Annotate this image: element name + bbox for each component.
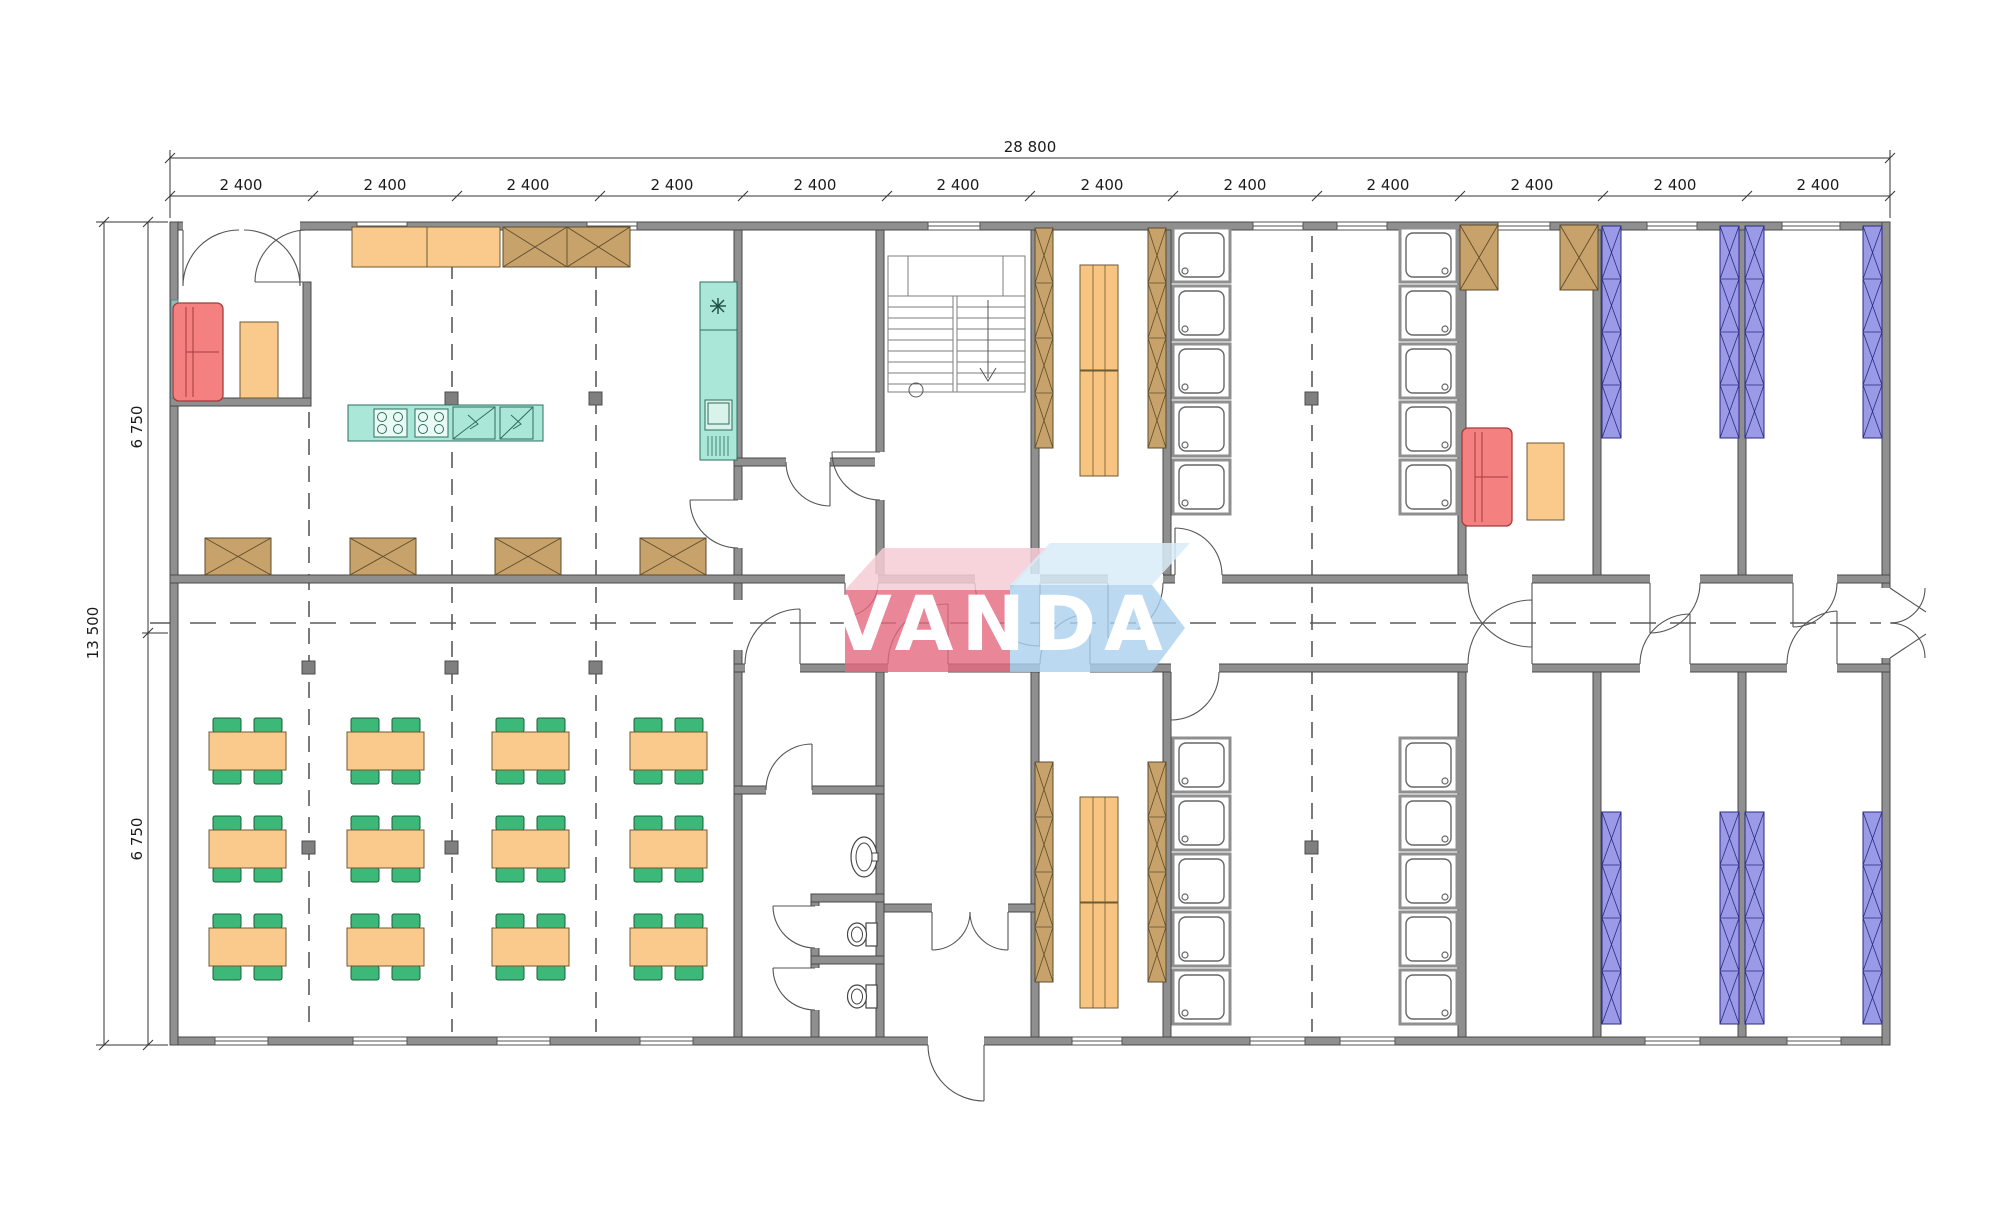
dining-table-set (209, 816, 286, 882)
oven (705, 400, 732, 430)
dim-segment: 2 400 (794, 176, 837, 194)
locker-column (1148, 762, 1166, 982)
door (1793, 583, 1837, 627)
wardrobe-locker (1560, 225, 1598, 290)
dim-segment: 2 400 (1224, 176, 1267, 194)
column (1305, 392, 1318, 405)
dim-segment: 2 400 (1511, 176, 1554, 194)
exterior-wall-bottom (170, 1037, 1890, 1045)
dim-total-height: 13 500 (84, 607, 102, 660)
column (445, 841, 458, 854)
interior-wall (811, 894, 884, 902)
bench (1080, 903, 1118, 1008)
dim-segment: 2 400 (651, 176, 694, 194)
table (240, 322, 278, 398)
bunk-rack (1602, 812, 1621, 1024)
column (589, 392, 602, 405)
tall-kitchen-unit (700, 282, 737, 460)
door (1468, 583, 1532, 647)
wardrobe-locker (1460, 225, 1498, 290)
shower-room-bottom (1173, 738, 1457, 1024)
dining-table-set (630, 718, 707, 784)
column (589, 661, 602, 674)
bench (1080, 797, 1118, 902)
serving-table (205, 538, 271, 575)
dim-total-width: 28 800 (1004, 138, 1057, 156)
fridge-icon (710, 298, 726, 314)
door (786, 462, 830, 506)
dining-table-set (209, 914, 286, 980)
bunk-rack (1602, 226, 1621, 438)
bunk-rack (1863, 812, 1882, 1024)
sofa (173, 303, 223, 401)
double-door-leaf (970, 912, 1008, 950)
dining-table-set (209, 718, 286, 784)
bench (1080, 265, 1118, 370)
door (1171, 672, 1219, 720)
dim-upper-half: 6 750 (128, 406, 146, 449)
door (745, 609, 800, 664)
interior-wall (1458, 664, 1466, 1037)
dim-segment: 2 400 (1797, 176, 1840, 194)
dining-table-set (492, 816, 569, 882)
entrance-door-leaf (183, 230, 239, 286)
dim-segment: 2 400 (220, 176, 263, 194)
column (445, 392, 458, 405)
dining-table-set (630, 816, 707, 882)
column (302, 841, 315, 854)
dining-table-set (347, 816, 424, 882)
locker-column (1035, 228, 1053, 448)
dim-segment: 2 400 (507, 176, 550, 194)
dim-segment: 2 400 (1654, 176, 1697, 194)
interior-wall (876, 230, 884, 583)
floor-plan-page: 28 800 2 400 2 400 2 400 2 400 2 400 2 4… (0, 0, 2000, 1216)
table (1527, 443, 1564, 520)
toilet (848, 985, 878, 1008)
interior-wall (303, 282, 311, 403)
kitchen-counter (352, 227, 500, 267)
dining-table-set (630, 914, 707, 980)
dining-table-set (347, 914, 424, 980)
floor-plan-drawing: 28 800 2 400 2 400 2 400 2 400 2 400 2 4… (0, 0, 2000, 1216)
dining-table-set (347, 718, 424, 784)
storage-crates (503, 227, 630, 267)
bunk-rack (1863, 226, 1882, 438)
double-door-leaf (932, 912, 970, 950)
wc-block (848, 837, 879, 1008)
interior-wall (876, 664, 884, 1037)
shower-room-top (1173, 228, 1457, 514)
door (766, 744, 812, 790)
changing-room-bottom (1035, 762, 1166, 1008)
serving-table (495, 538, 561, 575)
bunk-rack (1745, 226, 1764, 438)
staircase (888, 256, 1025, 397)
kitchen-island (348, 405, 543, 441)
lobby-room (171, 300, 278, 401)
toilet (848, 923, 878, 946)
exterior-door (928, 1045, 984, 1101)
locker-column (1035, 762, 1053, 982)
dim-segment: 2 400 (1367, 176, 1410, 194)
bench (1080, 371, 1118, 476)
dim-segment: 2 400 (1081, 176, 1124, 194)
entrance-door-leaf (244, 230, 300, 286)
changing-room-top (1035, 228, 1166, 476)
interior-wall (1593, 664, 1601, 1037)
bunk-rack (1745, 812, 1764, 1024)
exterior-double-door-leaf (1890, 623, 1926, 658)
dim-lower-half: 6 750 (128, 818, 146, 861)
vanda-logo: VANDA (833, 543, 1190, 672)
wc-stall-door (773, 968, 815, 1010)
exterior-double-door-leaf (1890, 588, 1926, 623)
locker-column (1148, 228, 1166, 448)
column (445, 661, 458, 674)
dim-segment: 2 400 (937, 176, 980, 194)
door (1468, 600, 1532, 664)
dining-table-set (492, 914, 569, 980)
column (1305, 841, 1318, 854)
serving-table (640, 538, 706, 575)
lounge-room (1460, 225, 1598, 526)
logo-text: VANDA (833, 579, 1171, 668)
dim-segment: 2 400 (364, 176, 407, 194)
bunk-rack (1720, 812, 1739, 1024)
interior-wall (811, 956, 884, 964)
serving-table (350, 538, 416, 575)
wc-stall-door (773, 906, 815, 948)
dining-table-set (492, 718, 569, 784)
sofa (1462, 428, 1512, 526)
column (302, 661, 315, 674)
door (1787, 611, 1837, 664)
bunk-rack (1720, 226, 1739, 438)
